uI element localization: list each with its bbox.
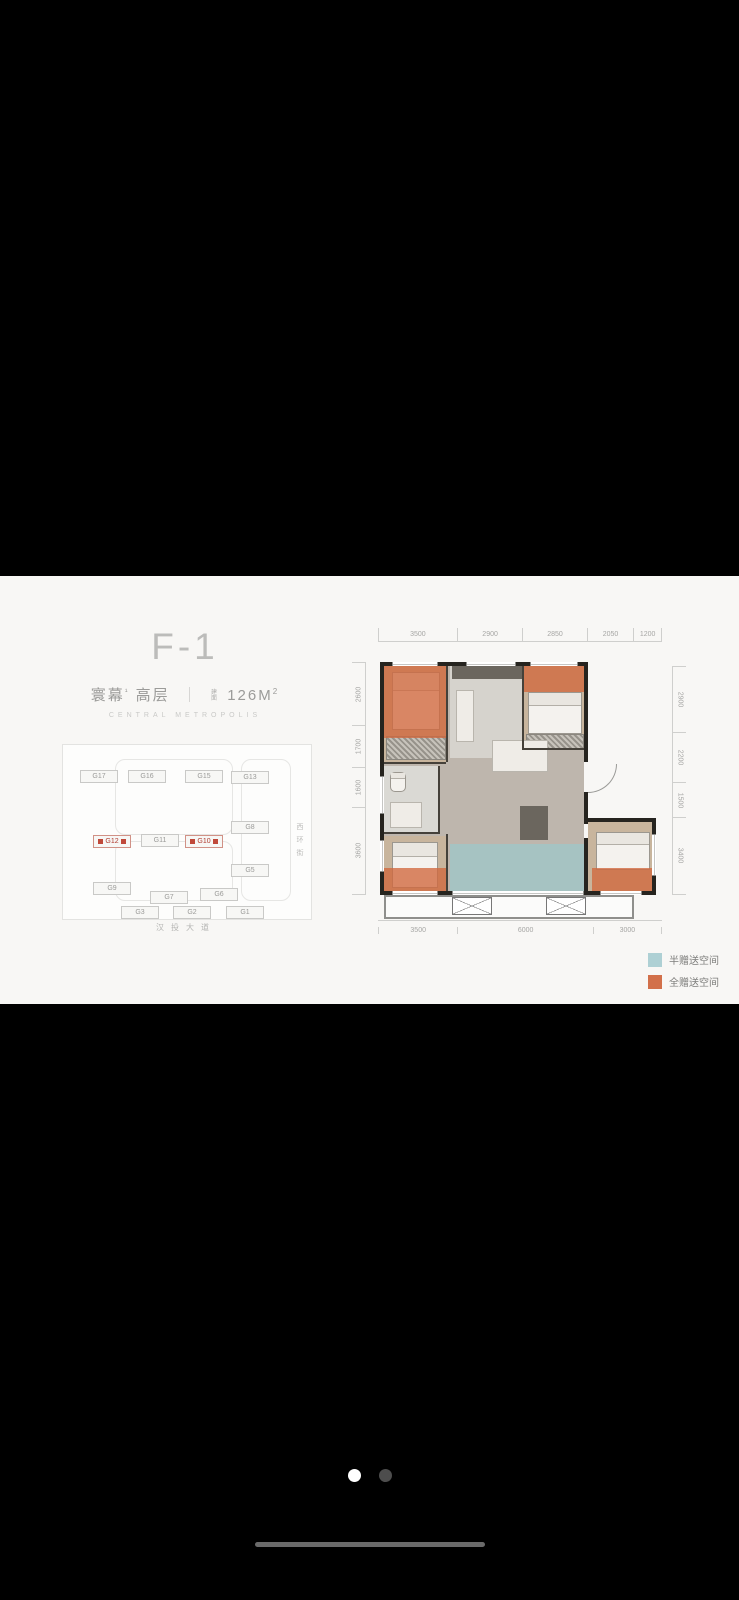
building-g8: G8 bbox=[231, 821, 269, 834]
dim-segment: 1500 bbox=[673, 782, 686, 817]
tagline: CENTRAL METROPOLIS bbox=[40, 712, 330, 719]
ac-unit-box bbox=[546, 897, 586, 915]
dim-segment: 3500 bbox=[378, 927, 457, 934]
dimension-col-left: 2600 1700 1600 3600 bbox=[352, 662, 366, 895]
dim-segment: 2600 bbox=[352, 662, 365, 725]
phone-screen: F-1 寰幕¹ 高层 ｜ 建面 126M2 CENTRAL METROPOLIS… bbox=[0, 0, 739, 1600]
kitchen-cabinet bbox=[456, 690, 474, 742]
dining-table bbox=[492, 740, 548, 772]
page-title: F-1 bbox=[40, 626, 330, 668]
dim-segment: 2850 bbox=[522, 628, 586, 641]
unit-type: 高层 bbox=[136, 687, 170, 704]
ac-unit-box bbox=[452, 897, 492, 915]
page-dot-active[interactable] bbox=[348, 1469, 361, 1482]
building-g13: G13 bbox=[231, 771, 269, 784]
building-g2: G2 bbox=[173, 906, 211, 919]
brand-name: 寰幕 bbox=[91, 687, 125, 704]
street-label-right: 西环街 bbox=[294, 823, 304, 862]
building-g11: G11 bbox=[141, 834, 179, 847]
sliding-door bbox=[452, 891, 584, 895]
legend-item-full-gift: 全赠送空间 bbox=[648, 974, 719, 989]
full-gift-zone-topright bbox=[524, 666, 584, 692]
half-gift-zone-living bbox=[450, 844, 584, 891]
home-indicator-bar[interactable] bbox=[255, 1542, 485, 1547]
dim-segment: 1200 bbox=[633, 628, 662, 641]
building-g5: G5 bbox=[231, 864, 269, 877]
dim-segment: 2900 bbox=[673, 666, 686, 732]
window bbox=[380, 840, 384, 872]
kitchen-island bbox=[520, 806, 548, 840]
unit-subtitle: 寰幕¹ 高层 ｜ 建面 126M2 bbox=[40, 684, 330, 705]
window bbox=[380, 776, 384, 814]
legend-item-half-gift: 半赠送空间 bbox=[648, 952, 719, 967]
building-g7: G7 bbox=[150, 891, 188, 904]
window bbox=[466, 662, 516, 666]
legend: 半赠送空间 全赠送空间 bbox=[648, 952, 719, 989]
toilet bbox=[390, 772, 406, 792]
building-g1: G1 bbox=[226, 906, 264, 919]
subtitle-divider: ｜ bbox=[182, 687, 199, 704]
floorplan-slide[interactable]: F-1 寰幕¹ 高层 ｜ 建面 126M2 CENTRAL METROPOLIS… bbox=[0, 576, 739, 1004]
legend-label: 全赠送空间 bbox=[669, 974, 719, 989]
wall-segment bbox=[584, 838, 588, 895]
shower bbox=[390, 802, 422, 828]
dim-segment: 1600 bbox=[352, 767, 365, 806]
area-value: 126M bbox=[227, 687, 273, 704]
window bbox=[652, 834, 656, 876]
dim-segment: 1700 bbox=[352, 725, 365, 767]
building-g15: G15 bbox=[185, 770, 223, 783]
bed bbox=[528, 692, 582, 734]
building-g6: G6 bbox=[200, 888, 238, 901]
window bbox=[600, 891, 642, 895]
wall-segment bbox=[588, 818, 656, 822]
dim-segment: 2200 bbox=[673, 732, 686, 782]
full-gift-zone-wing bbox=[592, 868, 652, 891]
building-g9: G9 bbox=[93, 882, 131, 895]
dim-segment: 2900 bbox=[457, 628, 523, 641]
dim-segment: 3400 bbox=[673, 817, 686, 895]
interior-wall bbox=[522, 666, 524, 750]
page-dot-inactive[interactable] bbox=[379, 1469, 392, 1482]
interior-wall bbox=[446, 834, 448, 891]
building-g17: G17 bbox=[80, 770, 118, 783]
bed bbox=[596, 832, 650, 870]
legend-label: 半赠送空间 bbox=[669, 952, 719, 967]
half-gift-swatch bbox=[648, 953, 662, 967]
dimension-row-top: 3500 2900 2850 2050 1200 bbox=[378, 628, 662, 642]
area-sup: 2 bbox=[273, 687, 279, 696]
dim-segment: 3000 bbox=[593, 927, 662, 934]
interior-wall bbox=[524, 748, 584, 750]
interior-wall bbox=[384, 762, 446, 764]
window bbox=[392, 662, 438, 666]
interior-wall bbox=[384, 832, 440, 834]
full-gift-swatch bbox=[648, 975, 662, 989]
full-gift-zone-topleft bbox=[384, 666, 446, 738]
wall-segment bbox=[584, 662, 588, 762]
wardrobe bbox=[386, 736, 446, 760]
building-g16: G16 bbox=[128, 770, 166, 783]
dim-segment: 3500 bbox=[378, 628, 457, 641]
carousel-page-indicator bbox=[0, 1469, 739, 1482]
unit-header: F-1 寰幕¹ 高层 ｜ 建面 126M2 CENTRAL METROPOLIS bbox=[40, 626, 330, 719]
interior-wall bbox=[446, 666, 448, 762]
window bbox=[530, 662, 578, 666]
dim-segment: 2050 bbox=[587, 628, 634, 641]
dimension-row-bottom: 3500 6000 3000 bbox=[378, 920, 662, 934]
dim-segment: 6000 bbox=[457, 927, 592, 934]
street-label-bottom: 汉投大道 bbox=[62, 922, 310, 933]
brand-sup: ¹ bbox=[125, 687, 130, 696]
site-plan: G17 G16 G15 G13 G8 G12 G11 G10 G5 G9 G7 … bbox=[62, 744, 312, 920]
full-gift-zone-bottomleft bbox=[384, 868, 446, 891]
building-g3: G3 bbox=[121, 906, 159, 919]
dimension-col-right: 2900 2200 1500 3400 bbox=[672, 666, 686, 895]
entry-door-arc bbox=[588, 764, 617, 793]
building-g10-highlighted: G10 bbox=[185, 835, 223, 848]
interior-wall bbox=[438, 766, 440, 832]
window bbox=[392, 891, 438, 895]
area-prefix: 建面 bbox=[211, 690, 219, 702]
kitchen-counter bbox=[452, 666, 522, 679]
dim-segment: 3600 bbox=[352, 807, 365, 895]
balcony bbox=[384, 895, 634, 919]
building-g12-highlighted: G12 bbox=[93, 835, 131, 848]
